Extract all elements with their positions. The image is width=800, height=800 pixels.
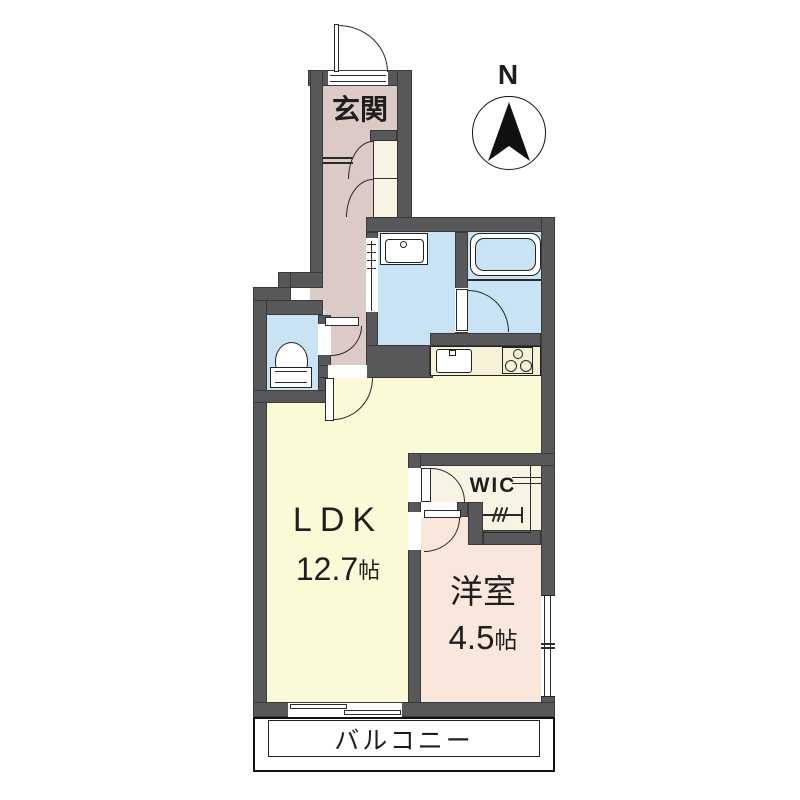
wic-door-opening xyxy=(408,468,421,502)
bathtub-inner xyxy=(475,238,536,271)
wall xyxy=(310,70,323,288)
vanity-faucet xyxy=(400,241,407,248)
entry-door-opening xyxy=(328,71,388,85)
room-wic-lower xyxy=(483,496,541,530)
wall xyxy=(408,453,555,466)
wall xyxy=(366,345,430,378)
western-room-door-opening xyxy=(408,512,421,550)
entry-door-swing-arc xyxy=(338,25,388,72)
western-room-size-label: 4.5帖 xyxy=(431,617,535,659)
window-line xyxy=(550,595,551,697)
genkan-step-line xyxy=(323,157,353,159)
ldk-size-value: 12.7 xyxy=(296,551,358,588)
wic-door-leaf xyxy=(421,468,431,502)
sliding-door-tick xyxy=(367,244,376,245)
balcony-sliding-panel xyxy=(344,710,401,715)
toilet-door-opening xyxy=(318,324,331,355)
ldk-size-unit: 帖 xyxy=(358,553,380,585)
window-mid-line xyxy=(541,647,555,649)
compass-icon xyxy=(472,96,546,170)
entry-threshold-line xyxy=(330,81,386,82)
western-room-size-unit: 帖 xyxy=(494,621,517,655)
toilet-tank-line xyxy=(275,371,307,372)
wall xyxy=(253,300,267,717)
kitchen-faucet xyxy=(449,350,456,356)
wall xyxy=(468,502,483,545)
bathtub-apron-line xyxy=(468,279,541,281)
hallway-ldk-door-opening xyxy=(328,365,367,378)
entry-threshold-line xyxy=(330,75,386,76)
stove-burner xyxy=(513,349,523,359)
genkan-step-line xyxy=(323,162,353,164)
window-mid-line xyxy=(541,643,555,645)
closet-panel xyxy=(373,140,398,179)
stove-burner xyxy=(520,360,532,372)
north-label: N xyxy=(490,58,526,92)
sliding-door-tick xyxy=(367,268,376,269)
ldk-label: LDK xyxy=(277,500,399,540)
western-room-size-value: 4.5 xyxy=(449,619,495,657)
floor-plan: バルコニー N 玄関 LDK 12.7帖 WIC 洋室 4.5帖 xyxy=(0,0,800,800)
bathroom-door-leaf xyxy=(456,289,468,331)
genkan-label: 玄関 xyxy=(323,90,397,126)
stove-burner xyxy=(505,360,517,372)
western-room-door-leaf xyxy=(424,510,461,518)
window-line xyxy=(544,595,545,697)
wic-bottom-line xyxy=(483,532,531,533)
wic-label: WIC xyxy=(464,473,522,499)
toilet-tank-line xyxy=(275,382,307,383)
wall xyxy=(366,217,555,232)
closet-panel xyxy=(373,178,398,218)
balcony-label: バルコニー xyxy=(268,720,540,757)
sliding-door-tick xyxy=(367,252,376,253)
wic-rod-end-tick xyxy=(521,507,523,523)
sliding-door-tick xyxy=(367,260,376,261)
toilet-door-leaf xyxy=(325,317,359,326)
wall xyxy=(397,70,412,232)
ldk-size-label: 12.7帖 xyxy=(277,549,399,589)
washroom-sliding-door-opening xyxy=(366,238,378,312)
western-room-label: 洋室 xyxy=(431,568,535,610)
balcony-sliding-panel xyxy=(290,704,347,709)
wall xyxy=(253,390,331,403)
wall xyxy=(430,333,541,346)
north-arrow-icon xyxy=(473,97,545,169)
